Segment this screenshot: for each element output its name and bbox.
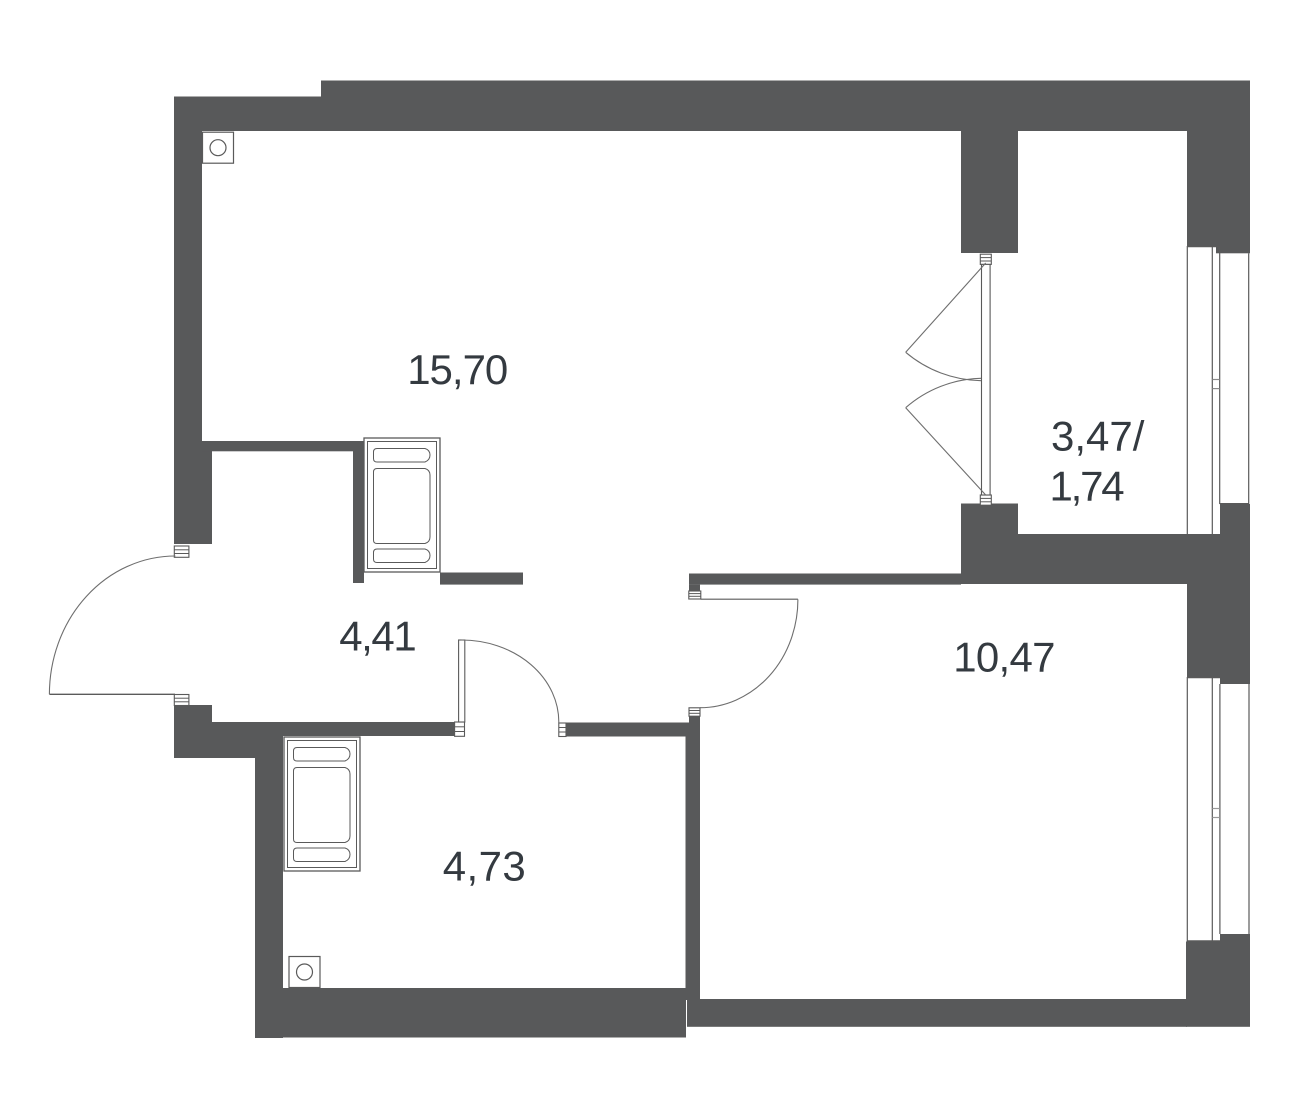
svg-text:4,41: 4,41	[339, 613, 415, 660]
svg-text:15,70: 15,70	[407, 346, 507, 393]
svg-text:10,47: 10,47	[953, 634, 1055, 681]
svg-text:4,73: 4,73	[443, 843, 526, 890]
svg-text:1,74: 1,74	[1050, 463, 1125, 510]
svg-text:3,47/: 3,47/	[1051, 413, 1145, 460]
